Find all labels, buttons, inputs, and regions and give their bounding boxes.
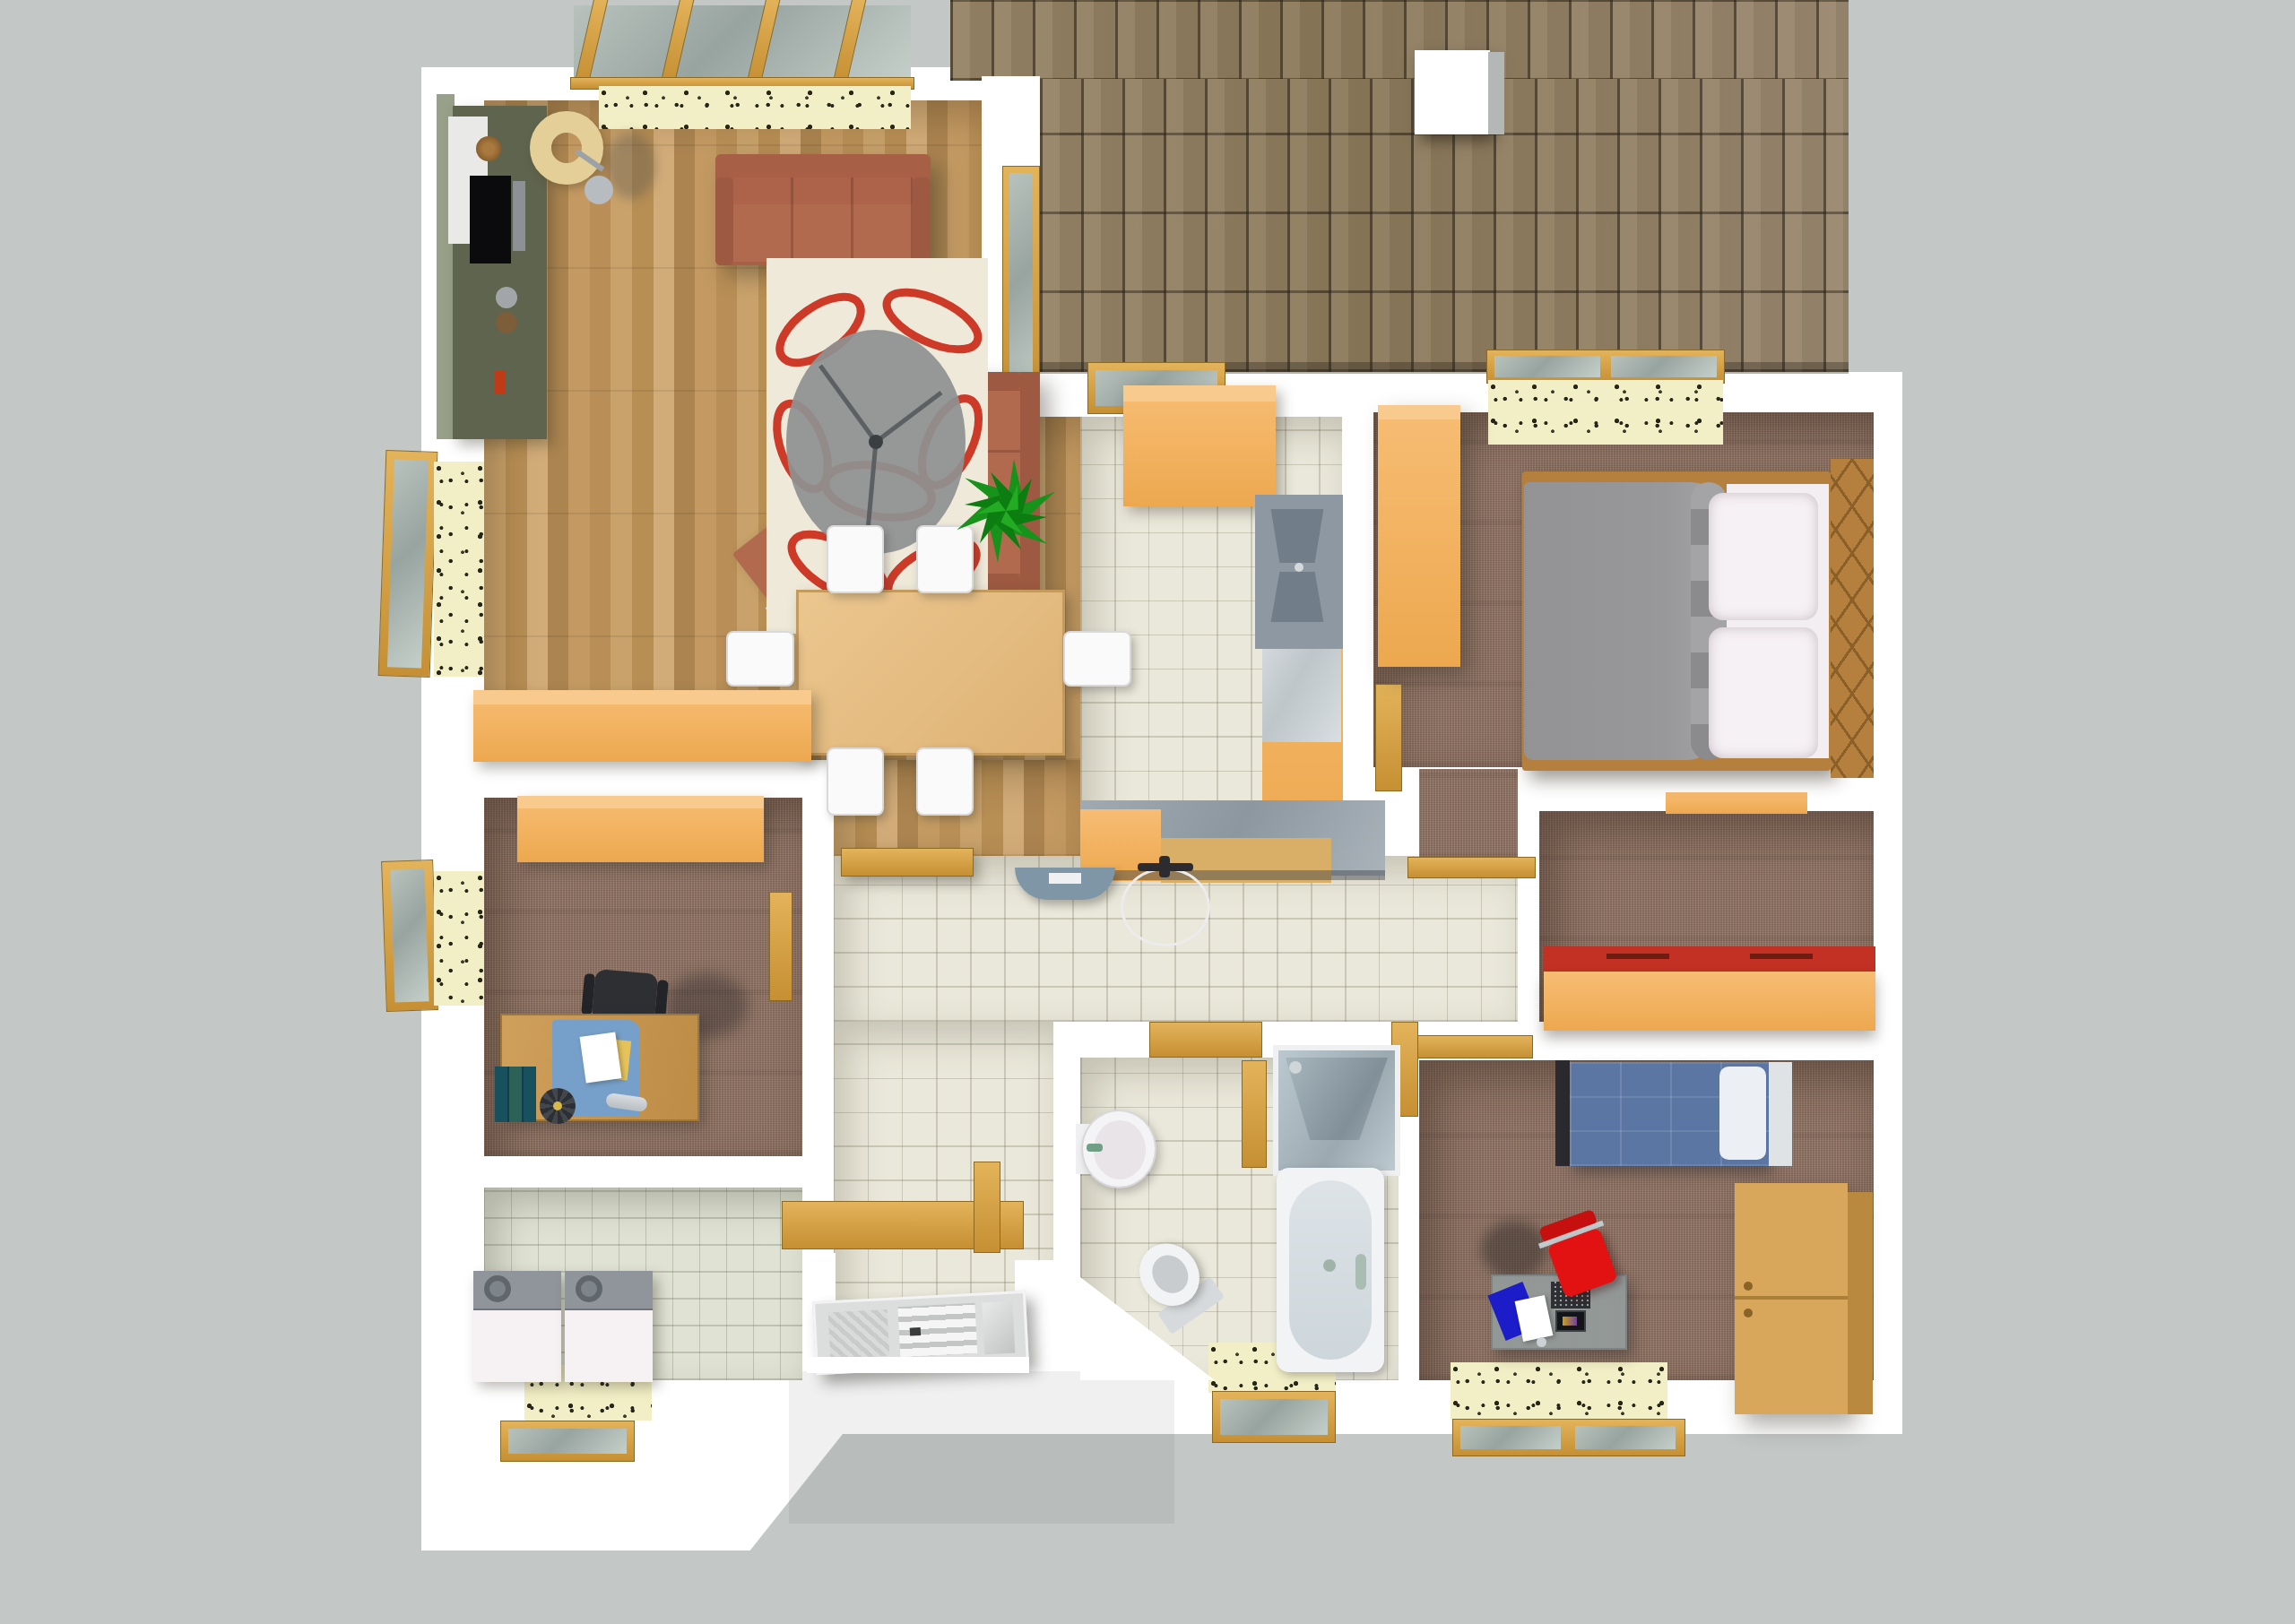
- kitchen-marble-counter: [1262, 649, 1341, 742]
- dining-chair: [726, 631, 794, 687]
- living-top-window-sill: [599, 86, 911, 129]
- kitchen-bedroom-door: [1375, 684, 1402, 791]
- window-glass: [387, 459, 429, 668]
- books: [495, 1067, 536, 1122]
- bowl: [496, 312, 517, 333]
- threshold-kids: [1410, 1035, 1533, 1058]
- kids-window-frame: [1452, 1419, 1685, 1456]
- window-glass: [508, 1429, 627, 1454]
- sofa-arm: [913, 177, 931, 265]
- mouse: [1537, 1337, 1546, 1347]
- window-glass: [1575, 1426, 1676, 1449]
- window-glass: [1220, 1399, 1328, 1435]
- kids-cabinet-side: [1848, 1192, 1873, 1414]
- shower-cabin: [1273, 1045, 1400, 1176]
- kids-bed-footboard: [1769, 1062, 1792, 1166]
- daybed-cushion: [1544, 946, 1875, 972]
- bathtub: [1277, 1168, 1384, 1372]
- lamp-shadow: [606, 133, 656, 199]
- pillow: [1709, 627, 1818, 758]
- entry-step: [807, 1357, 1029, 1373]
- master-window-frame: [1486, 350, 1725, 384]
- desk-fan: [540, 1088, 576, 1124]
- front-door-panel: [828, 1309, 890, 1359]
- front-door-handle: [910, 1327, 921, 1336]
- sofa-arm: [715, 177, 733, 265]
- floor-plan: [0, 0, 2295, 1624]
- wardrobe-top: [517, 796, 764, 808]
- laptop-screen: [1555, 1310, 1586, 1332]
- dining-chair: [916, 747, 974, 816]
- bathtub-handle: [1355, 1254, 1366, 1290]
- kids-pillow: [1719, 1067, 1766, 1160]
- sofa-three-seat: [715, 154, 931, 265]
- dining-chair: [1063, 631, 1131, 687]
- master-wardrobe: [1378, 405, 1460, 667]
- potted-plant: [950, 455, 1061, 566]
- dining-chair: [827, 747, 884, 816]
- pillow: [1709, 493, 1818, 620]
- cushion-seam: [1750, 954, 1813, 959]
- chimney: [1415, 50, 1490, 134]
- bed-blanket: [1524, 482, 1727, 760]
- utility-window-frame: [500, 1421, 635, 1462]
- window-glass: [1611, 356, 1717, 377]
- office-casement-sill: [434, 871, 484, 1006]
- shelf-item-red: [495, 371, 506, 394]
- paper-sheet: [580, 1032, 622, 1083]
- shower-head: [1289, 1061, 1302, 1074]
- lamp-blade: [1159, 856, 1170, 877]
- sideboard: [473, 690, 811, 762]
- fan-hub: [553, 1101, 562, 1110]
- window-glass: [390, 868, 429, 1002]
- bathroom-door: [1242, 1060, 1267, 1168]
- floor-lamp-base: [585, 176, 613, 204]
- sink-basin: [1266, 509, 1329, 563]
- roof-strip: [950, 0, 1849, 81]
- bathroom-window-frame: [1212, 1391, 1336, 1443]
- basket: [476, 136, 501, 161]
- window-glass: [1494, 356, 1600, 377]
- machine-front: [565, 1309, 653, 1382]
- office-casement-window: [381, 860, 438, 1012]
- cabinet-divider: [1735, 1296, 1848, 1300]
- bathroom-door-header: [1149, 1022, 1262, 1058]
- basin-faucet: [1087, 1144, 1103, 1152]
- dining-chair: [827, 525, 884, 593]
- wardrobe-top: [1378, 405, 1460, 419]
- counter-edge-shadow: [1080, 870, 1385, 880]
- sink-basin: [1266, 572, 1329, 622]
- kids-window-sill: [1451, 1362, 1667, 1420]
- sideboard-top: [473, 690, 811, 704]
- machine-drum: [484, 1275, 511, 1302]
- kitchen-sink-unit: [1255, 495, 1343, 649]
- sofa-seat-cushions: [733, 204, 913, 262]
- daybed-base: [1544, 972, 1875, 1031]
- master-window-sill: [1488, 380, 1723, 445]
- living-casement-sill: [434, 462, 484, 677]
- cabinet-handle: [1744, 1309, 1753, 1317]
- washing-machine: [473, 1271, 561, 1380]
- kids-cabinet: [1735, 1183, 1848, 1414]
- office-wardrobe: [517, 796, 764, 862]
- front-door-sidelite: [982, 1301, 1015, 1355]
- cabinet-top: [1123, 385, 1276, 402]
- office-door: [769, 892, 792, 1001]
- machine-front: [473, 1309, 561, 1382]
- porch-shadow: [789, 1371, 1174, 1524]
- chimney-side: [1488, 52, 1504, 134]
- doorway-carpet: [1419, 769, 1518, 859]
- dining-table: [796, 590, 1065, 756]
- kids-bed-headboard: [1555, 1060, 1570, 1166]
- window-glass: [1009, 173, 1033, 406]
- lamp-detail: [1049, 873, 1081, 884]
- window-glass: [1460, 1426, 1561, 1449]
- threshold-master-hall: [1407, 857, 1536, 878]
- wash-basin: [1081, 1110, 1156, 1188]
- cushion-seam: [1606, 954, 1669, 959]
- utility-door-post: [974, 1162, 1000, 1253]
- kitchen-upper-cabinet: [1123, 385, 1276, 506]
- guest-window-shelf: [1666, 792, 1807, 814]
- lattice-headboard: [1831, 459, 1874, 778]
- hall-bench: [841, 848, 974, 877]
- bathtub-drain: [1323, 1259, 1336, 1272]
- sofa-back-cushions: [733, 177, 913, 204]
- floor-lamp: [530, 111, 603, 185]
- tumble-dryer: [565, 1271, 653, 1380]
- tv-screen: [470, 176, 511, 263]
- cabinet-handle: [1744, 1282, 1753, 1291]
- bowl: [496, 287, 517, 308]
- wire-pendant-lamp: [1121, 868, 1210, 946]
- faucet: [1295, 563, 1303, 572]
- screen-content: [1563, 1317, 1577, 1326]
- machine-drum: [576, 1275, 602, 1302]
- living-casement-window: [378, 450, 438, 678]
- sat-receiver: [513, 181, 525, 251]
